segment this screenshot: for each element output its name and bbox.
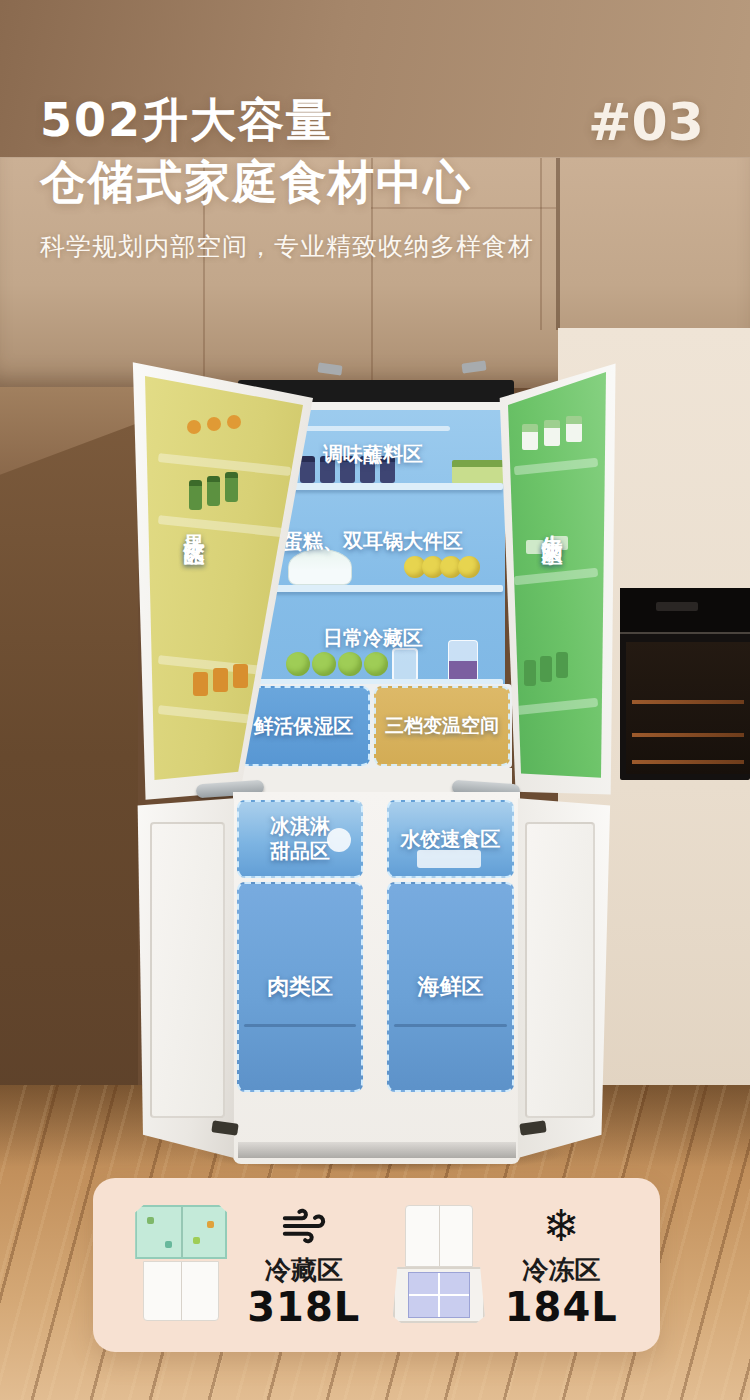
- interior-led-light: [300, 426, 450, 431]
- zone-box-variable-temp: 三档变温空间: [374, 686, 510, 766]
- food-item-tray: [417, 850, 481, 868]
- mini-fridge-cold-illustration: [135, 1205, 227, 1325]
- food-item: [233, 664, 248, 688]
- food-item-tub: [327, 828, 351, 852]
- zone-box-ice-cream: 冰淇淋 甜品区: [237, 800, 363, 878]
- zone-label-variable-temp: 三档变温空间: [385, 713, 499, 739]
- page-title-line2: 仓储式家庭食材中心: [40, 152, 472, 214]
- food-item: [189, 480, 202, 510]
- zone-label-ice-cream: 冰淇淋 甜品区: [270, 814, 330, 864]
- food-item: [544, 420, 560, 446]
- zone-label-line: 甜品区: [270, 839, 330, 864]
- door-panel: [150, 822, 225, 1118]
- zone-label-large-items: 蛋糕、双耳锅大件区: [283, 528, 463, 555]
- capacity-summary-card: 冷藏区 318L ❄ 冷冻区 184L: [93, 1178, 660, 1352]
- food-item: [364, 652, 388, 676]
- freezer-zone-capacity: 184L: [505, 1285, 618, 1329]
- fridge-right-door: [496, 360, 618, 802]
- door-shelf: [158, 515, 291, 538]
- zone-label-condiments: 调味蘸料区: [323, 441, 423, 468]
- oven-rack: [632, 700, 744, 704]
- mini-freezer-drawers: [408, 1272, 470, 1318]
- cold-zone-info: 冷藏区 318L: [247, 1201, 360, 1330]
- cold-zone-summary: 冷藏区 318L: [119, 1178, 377, 1352]
- mini-fridge-top: [405, 1205, 473, 1267]
- food-item: [213, 668, 228, 692]
- food-item: [550, 536, 568, 550]
- oven-display: [656, 602, 698, 611]
- mini-item: [165, 1241, 172, 1248]
- drawer-seam: [244, 1024, 356, 1027]
- left-wall-shadowed: [0, 423, 138, 1163]
- product-infographic: 502升大容量 仓储式家庭食材中心 #03 科学规划内部空间，专业精致收纳多样食…: [0, 0, 750, 1400]
- snowflake-glyph: ❄: [543, 1204, 580, 1248]
- freezer-zone-info: ❄ 冷冻区 184L: [505, 1201, 618, 1330]
- oven-rack: [632, 760, 744, 764]
- mini-fridge-open-top: [135, 1205, 227, 1259]
- cold-zone-capacity: 318L: [247, 1285, 360, 1329]
- zone-label-seafood: 海鲜区: [418, 972, 484, 1002]
- food-item: [300, 456, 315, 483]
- zone-label-milk-wine: 牛奶酒水区: [538, 518, 566, 533]
- door-shelf: [514, 458, 598, 476]
- oven-control-panel: [620, 588, 750, 634]
- mini-fridge-freezer-illustration: [393, 1205, 485, 1325]
- food-item: [227, 415, 241, 429]
- freezer-zone-summary: ❄ 冷冻区 184L: [377, 1178, 635, 1352]
- zone-label-daily-cold: 日常冷藏区: [323, 625, 423, 652]
- mini-fridge-body: [143, 1261, 219, 1321]
- door-shelf: [514, 568, 598, 586]
- zone-label-humidity: 鲜活保湿区: [254, 713, 354, 740]
- food-item: [522, 424, 538, 450]
- glass-shelf: [242, 585, 503, 592]
- oven-rack: [632, 733, 744, 737]
- page-title-line1: 502升大容量: [40, 90, 334, 152]
- zone-box-dumplings: 水饺速食区: [387, 800, 514, 878]
- snowflake-icon: ❄: [543, 1201, 580, 1251]
- food-item: [207, 476, 220, 506]
- food-item: [524, 660, 536, 686]
- right-door-highlight-green: [506, 372, 606, 786]
- drawer-seam: [394, 1024, 507, 1027]
- food-item: [193, 672, 208, 696]
- zone-label-juice-drinks: 果汁饮品区: [180, 518, 208, 533]
- food-item: [312, 652, 336, 676]
- food-item: [187, 420, 201, 434]
- page-subtitle: 科学规划内部空间，专业精致收纳多样食材: [40, 230, 534, 263]
- zone-label-dumplings: 水饺速食区: [401, 826, 501, 853]
- food-item: [225, 472, 238, 502]
- shelf-items-apples: [286, 652, 388, 676]
- food-item: [526, 540, 544, 554]
- cold-zone-label: 冷藏区: [265, 1256, 343, 1285]
- food-item: [338, 652, 362, 676]
- mini-fridge-open-bottom: [393, 1267, 485, 1323]
- zone-box-seafood: 海鲜区: [387, 882, 514, 1092]
- freezer-right-door: [517, 796, 613, 1158]
- zone-label-line: 冰淇淋: [270, 814, 330, 839]
- food-item-berry-cup: [448, 640, 478, 682]
- food-item-cup: [392, 648, 418, 682]
- food-item: [207, 417, 221, 431]
- mini-item: [207, 1221, 214, 1228]
- freezer-zone-label: 冷冻区: [522, 1256, 600, 1285]
- mini-item: [147, 1217, 154, 1224]
- food-item: [540, 656, 552, 682]
- mini-item: [193, 1237, 200, 1244]
- food-item: [286, 652, 310, 676]
- oven-glass-door: [626, 642, 750, 774]
- food-item: [556, 652, 568, 678]
- zone-label-meat: 肉类区: [267, 972, 333, 1002]
- shelf-items-lemons: [408, 556, 480, 578]
- zone-box-meat: 肉类区: [237, 882, 363, 1092]
- wind-icon: [280, 1201, 328, 1251]
- freezer-left-door: [128, 796, 235, 1158]
- cabinet-seam: [540, 158, 542, 330]
- freezer-base-shadow: [238, 1142, 516, 1158]
- index-badge: #03: [588, 92, 704, 152]
- door-shelf: [158, 453, 291, 476]
- door-panel: [525, 822, 595, 1118]
- food-item-box: [452, 460, 504, 484]
- food-item: [458, 556, 480, 578]
- door-shelf: [514, 698, 598, 716]
- cabinet-gap-seam: [556, 158, 560, 330]
- food-item: [566, 416, 582, 442]
